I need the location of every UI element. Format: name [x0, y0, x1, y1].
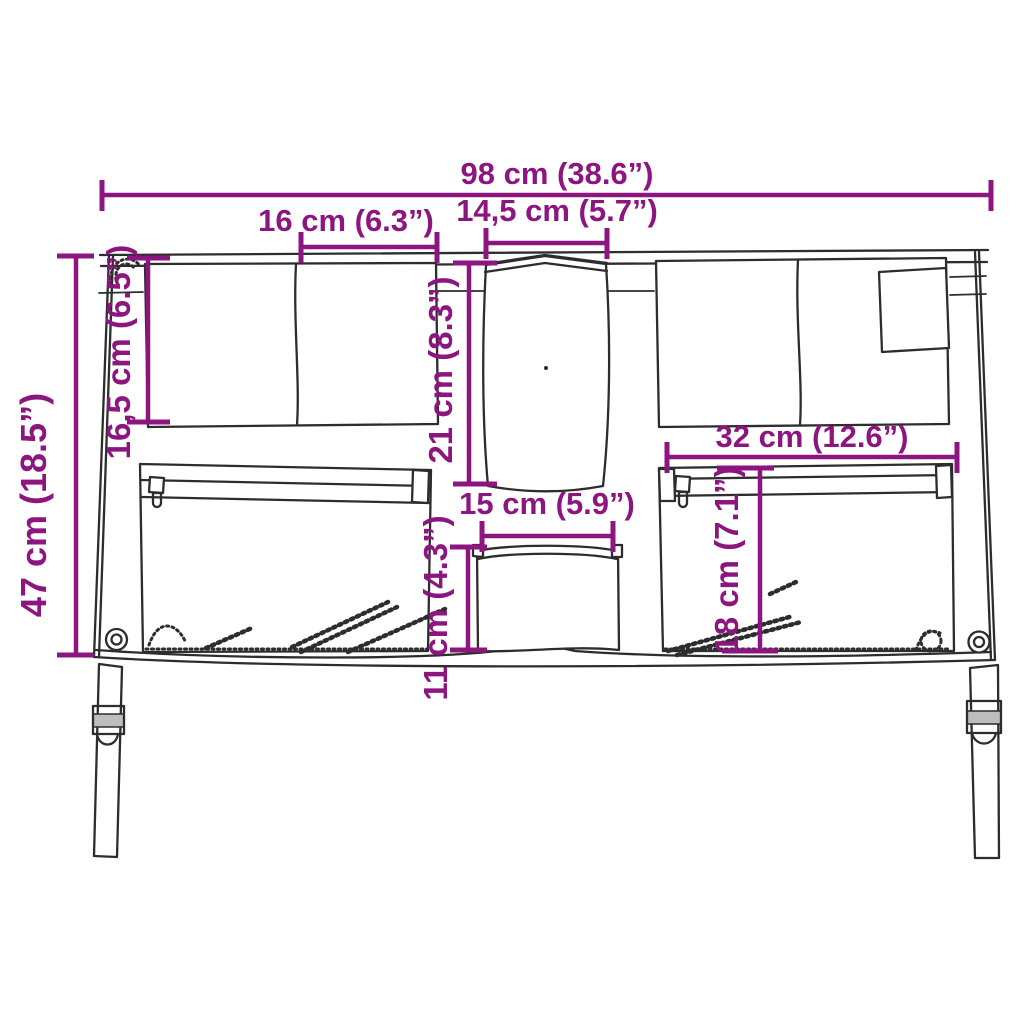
dimension-middle-pocket-width: 14,5 cm (5.7”) [456, 193, 658, 259]
pocket-patch [879, 268, 949, 352]
dim-overall-width-label: 98 cm (38.6”) [461, 156, 654, 191]
dim-bottom-middle-pocket-width-label: 15 cm (5.9”) [459, 486, 635, 521]
zipper-pull [149, 477, 164, 493]
zipper-pull [675, 476, 690, 492]
dim-right-zip-pocket-width-label: 32 cm (12.6”) [716, 419, 909, 454]
top-right-pocket [656, 258, 949, 427]
buckle [93, 706, 124, 734]
zipper-end-box [936, 465, 952, 498]
dimension-overall-height: 47 cm (18.5”) [13, 256, 94, 655]
dim-middle-pocket-width-label: 14,5 cm (5.7”) [456, 193, 658, 228]
stitch-dot [544, 366, 548, 370]
dim-overall-height-label: 47 cm (18.5”) [13, 393, 54, 617]
dim-right-zip-pocket-height-label: 18 cm (7.1”) [708, 466, 745, 653]
dimension-diagram-page: 98 cm (38.6”) 16 cm (6.3”) 14,5 cm (5.7”… [0, 0, 1024, 1024]
top-left-pocket [145, 263, 438, 427]
buckle [967, 701, 1001, 733]
zipper-end-box [412, 470, 429, 503]
left-zip-pocket [140, 464, 445, 652]
middle-tall-pocket [483, 255, 609, 491]
organizer-dimension-diagram: 98 cm (38.6”) 16 cm (6.3”) 14,5 cm (5.7”… [0, 0, 1024, 1024]
grommet-left [106, 629, 127, 650]
left-strap [93, 664, 124, 857]
bottom-middle-pocket [473, 545, 622, 651]
right-strap [967, 665, 1001, 858]
dim-left-top-pocket-width-label: 16 cm (6.3”) [258, 203, 434, 238]
dim-left-top-pocket-height-label: 16,5 cm (6.5”) [100, 245, 137, 460]
zipper-end-box [659, 469, 675, 501]
grommet-right [969, 632, 990, 653]
dim-bottom-middle-pocket-height-label: 11 cm (4.3”) [417, 515, 454, 700]
right-zip-pocket [659, 464, 954, 655]
dimension-bottom-middle-pocket-width: 15 cm (5.9”) [459, 486, 635, 552]
organizer-drawing [93, 250, 1001, 858]
dim-middle-pocket-height-label: 21 cm (8.3”) [422, 276, 459, 463]
